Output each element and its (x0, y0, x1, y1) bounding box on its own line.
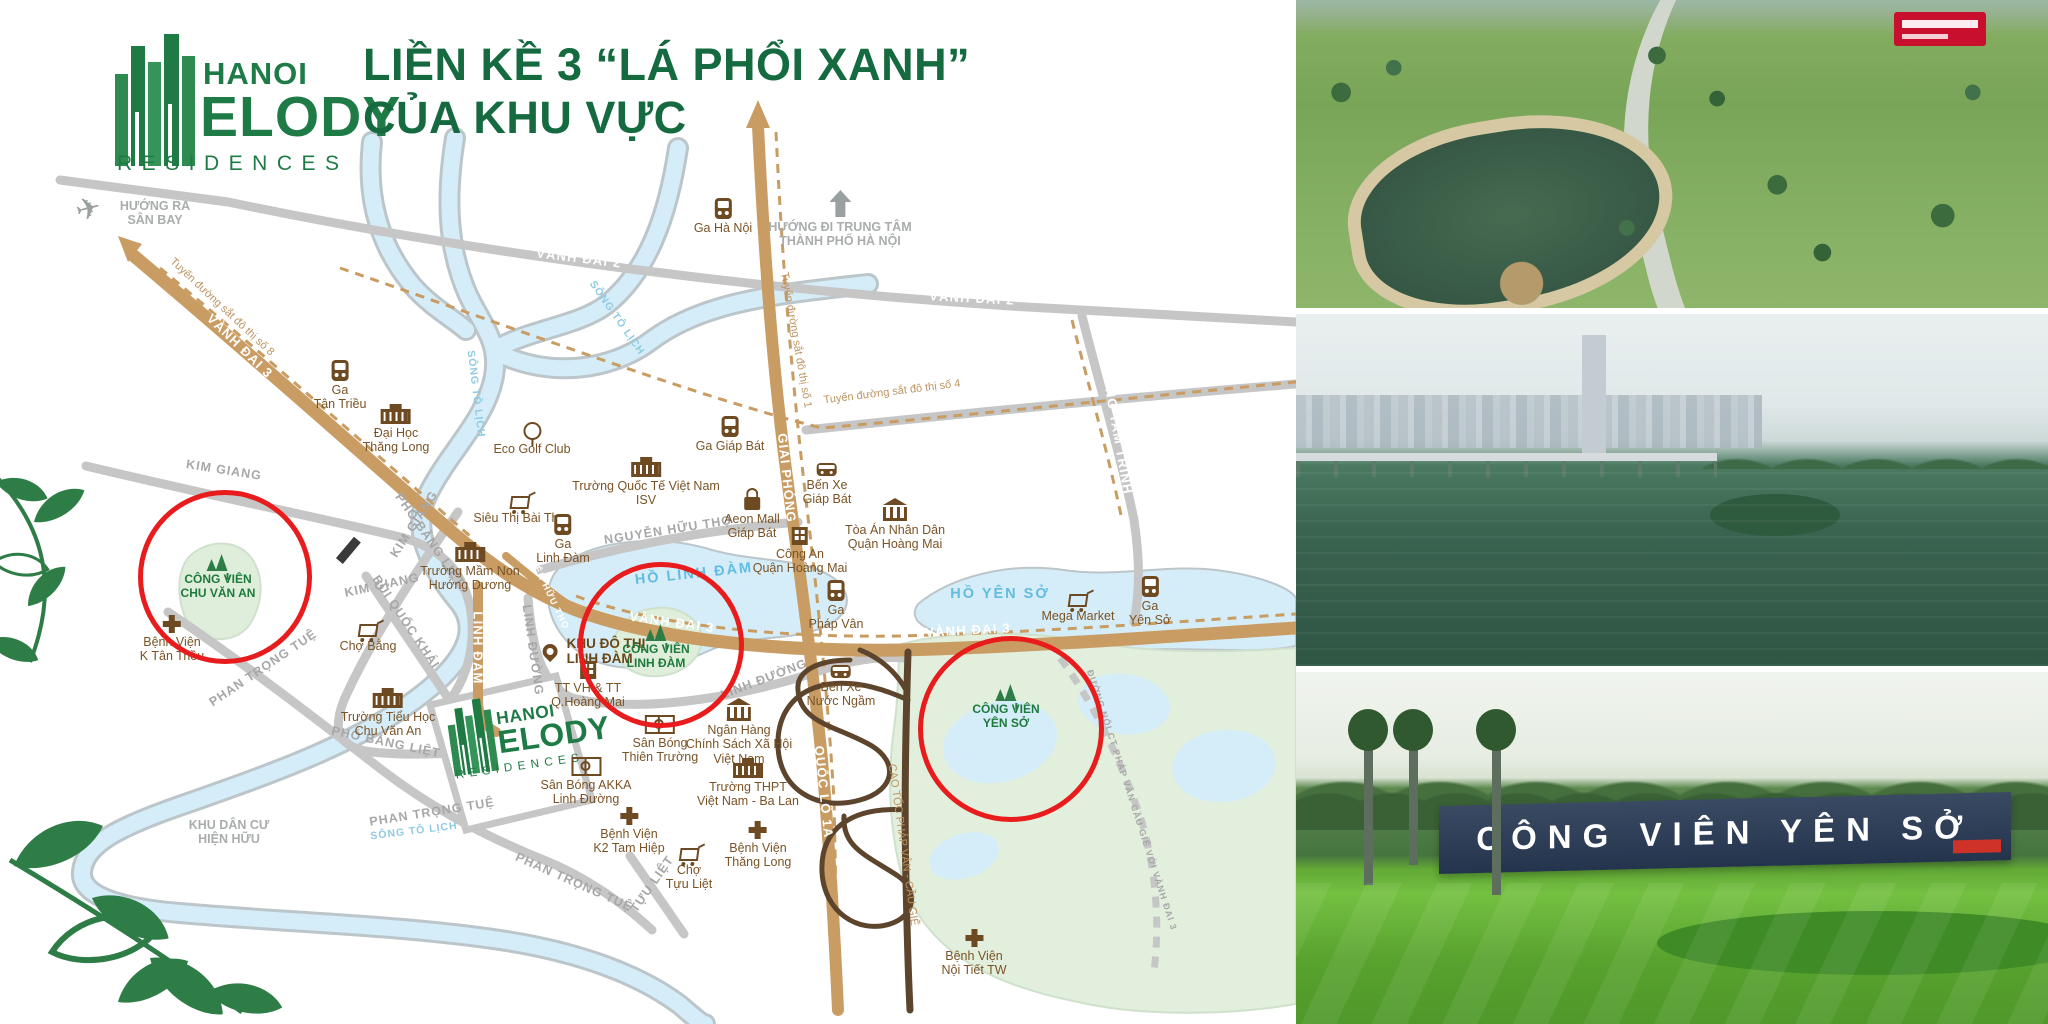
landmark-cart: Chợ Bằng (340, 618, 397, 653)
landmark-label: Ga Giáp Bát (696, 439, 765, 453)
landmark-cart: Chợ Tựu Liệt (666, 842, 713, 892)
road-label: HỒ YÊN SỞ (950, 586, 1049, 602)
road-label: SÔNG TÔ LỊCH (465, 350, 488, 439)
landmark-train: Ga Giáp Bát (696, 416, 765, 453)
location-map: VÀNH ĐAI 2VÀNH ĐAI 2VÀNH ĐAI 2.5VÀNH ĐAI… (0, 0, 1296, 1024)
train-icon (714, 198, 731, 219)
landmark-train: Ga Yên Sở (1129, 576, 1171, 628)
landmark-label: Ga Tân Triều (314, 383, 367, 412)
building-icon (792, 527, 808, 545)
park-sign-text: CÔNG VIÊN YÊN SỞ (1476, 808, 1973, 858)
train-icon (827, 580, 844, 601)
highlight-circle (918, 636, 1104, 822)
landmark-label: Trường Quốc Tế Việt Nam ISV (572, 479, 720, 508)
water-streaks (1296, 472, 2048, 666)
school-icon (733, 763, 763, 778)
road-label: Tuyến đường sắt đô thị số 8 (168, 256, 277, 359)
road-label: Tuyến đường sắt đô thị số 1 (778, 271, 814, 409)
hospital-icon (755, 821, 761, 839)
landmark-school: Trường Tiểu Học Chu Văn An (341, 686, 436, 739)
tall-tower (1582, 335, 1606, 453)
cart-icon (358, 624, 379, 637)
sign-red-logo (1952, 839, 2000, 853)
tree-dots (1296, 0, 2048, 308)
landmark-golf: Eco Golf Club (493, 422, 570, 456)
aerial-park-photo (1296, 0, 2048, 308)
bus-icon (831, 665, 851, 678)
train-icon (332, 360, 349, 381)
landmark-label: Trường THPT Việt Nam - Ba Lan (697, 780, 799, 809)
bag-icon (744, 497, 760, 510)
landmark-label: Đại Học Thăng Long (363, 426, 430, 455)
landmark-field: Sân Bóng AKKA Linh Đường (540, 752, 631, 807)
road-label: VÀNH ĐAI 2 (929, 288, 1015, 307)
arrow-icon (835, 202, 845, 217)
landmark-hospital: Bệnh Viện Thăng Long (725, 818, 792, 870)
road-label: ĐƯỜNG TAM TRINH (1096, 352, 1136, 495)
landmark-train: Ga Hà Nội (694, 198, 752, 235)
landmark-label: Bến Xe Nước Ngầm (807, 680, 876, 709)
landmark-hospital: Bệnh Viện K2 Tam Hiệp (593, 804, 664, 856)
road-label: PHAN TRỌNG TUỆ (513, 850, 634, 914)
road-label: CAO TỐC PHÁP VÂN - CẦU GIẼ (886, 763, 921, 926)
cart-icon (510, 496, 531, 509)
landmark-train: Ga Linh Đàm (536, 514, 590, 566)
landmark-train: Ga Pháp Vân (809, 580, 864, 632)
landmark-label: Công An Quận Hoàng Mai (753, 547, 848, 576)
landmark-building: Công An Quận Hoàng Mai (753, 524, 848, 576)
landmark-bus: Bến Xe Nước Ngầm (807, 660, 876, 709)
lawn-stripes (1296, 883, 2048, 1024)
landmark-label: Mega Market (1042, 609, 1115, 623)
highlight-circle (578, 562, 744, 728)
bank-icon (727, 707, 751, 721)
landmark-bank: Tòa Án Nhân Dân Quận Hoàng Mai (845, 498, 945, 552)
road-label: LINH ĐÀM (471, 611, 486, 684)
photo-column: CÔNG VIÊN YÊN SỞ (1296, 0, 2048, 1024)
tree-trunk (1492, 735, 1501, 895)
landmark-school: Trường Quốc Tế Việt Nam ISV (572, 455, 720, 508)
school-icon (381, 409, 411, 424)
bridge (1296, 453, 1717, 461)
landmark-label: Ga Hà Nội (694, 221, 752, 235)
landmark-hospital: Bệnh Viện Nội Tiết TW (941, 926, 1006, 978)
hospital-icon (971, 929, 977, 947)
landmark-label: Chợ Tựu Liệt (666, 863, 713, 892)
landmark-arrow: HƯỚNG ĐI TRUNG TÂM THÀNH PHỐ HÀ NỘI (768, 190, 911, 249)
highlight-circle (138, 490, 312, 664)
landmark-label: Trường Tiểu Học Chu Văn An (341, 710, 436, 739)
tree-trunk (1409, 735, 1418, 865)
road-label: QUỐC LỘ 1A (812, 745, 837, 839)
landmark-train: Ga Tân Triều (314, 360, 367, 412)
landmark-label: Bệnh Viện Thăng Long (725, 841, 792, 870)
map-label-layer: VÀNH ĐAI 2VÀNH ĐAI 2VÀNH ĐAI 2.5VÀNH ĐAI… (0, 0, 1296, 1024)
press-logo (1894, 12, 1986, 46)
landmark-label: Ga Pháp Vân (809, 603, 864, 632)
school-icon (455, 547, 485, 562)
road-label: KIM GIANG (185, 457, 263, 483)
landmark-label: Bệnh Viện K2 Tam Hiệp (593, 827, 664, 856)
landmark-label: Bệnh Viện Nội Tiết TW (941, 949, 1006, 978)
landmark-label: Chợ Bằng (340, 639, 397, 653)
road-label: VÀNH ĐAI 2 (536, 245, 623, 270)
train-icon (1142, 576, 1159, 597)
lake-treeline (1702, 413, 2048, 469)
landmark-note: KHU DÂN CƯ HIỆN HỮU (189, 818, 270, 847)
plane-icon (76, 196, 112, 228)
landmark-label: Ga Yên Sở (1129, 599, 1171, 628)
landmark-label: Sân Bóng AKKA Linh Đường (540, 778, 631, 807)
road-label: SÔNG TÔ LỊCH (587, 279, 647, 358)
landmark-label: Ga Linh Đàm (536, 537, 590, 566)
cart-icon (1068, 594, 1089, 607)
tree-trunk (1364, 735, 1373, 885)
poster: VÀNH ĐAI 2VÀNH ĐAI 2VÀNH ĐAI 2.5VÀNH ĐAI… (0, 0, 2048, 1024)
yen-so-sign-photo: CÔNG VIÊN YÊN SỞ (1296, 672, 2048, 1024)
landmark-school: Trường THPT Việt Nam - Ba Lan (697, 756, 799, 809)
golf-icon (523, 422, 541, 440)
train-icon (555, 514, 572, 535)
road-label: NGUYỄN HỮU THỌ (603, 513, 733, 547)
field-icon (571, 757, 601, 776)
hospital-icon (626, 807, 632, 825)
landmark-school: Đại Học Thăng Long (363, 402, 430, 455)
train-icon (721, 416, 738, 437)
landmark-label: HƯỚNG ĐI TRUNG TÂM THÀNH PHỐ HÀ NỘI (768, 220, 911, 249)
landmark-label: Trường Mầm Non Hướng Dương (420, 564, 519, 593)
lake-skyline-photo (1296, 314, 2048, 666)
landmark-cart: Mega Market (1042, 588, 1115, 623)
park-sign: CÔNG VIÊN YÊN SỞ (1439, 792, 2011, 874)
city-skyline (1296, 395, 1762, 448)
landmark-label: HƯỚNG RA SÂN BAY (120, 199, 190, 228)
school-icon (631, 462, 661, 477)
landmark-label: Tòa Án Nhân Dân Quận Hoàng Mai (845, 523, 945, 552)
cart-icon (679, 848, 700, 861)
landmark-plane: HƯỚNG RA SÂN BAY (76, 196, 190, 230)
school-icon (373, 693, 403, 708)
bank-icon (883, 507, 907, 521)
bus-icon (817, 463, 837, 476)
landmark-label: KHU DÂN CƯ HIỆN HỮU (189, 818, 270, 847)
landmark-school: Trường Mầm Non Hướng Dương (420, 540, 519, 593)
